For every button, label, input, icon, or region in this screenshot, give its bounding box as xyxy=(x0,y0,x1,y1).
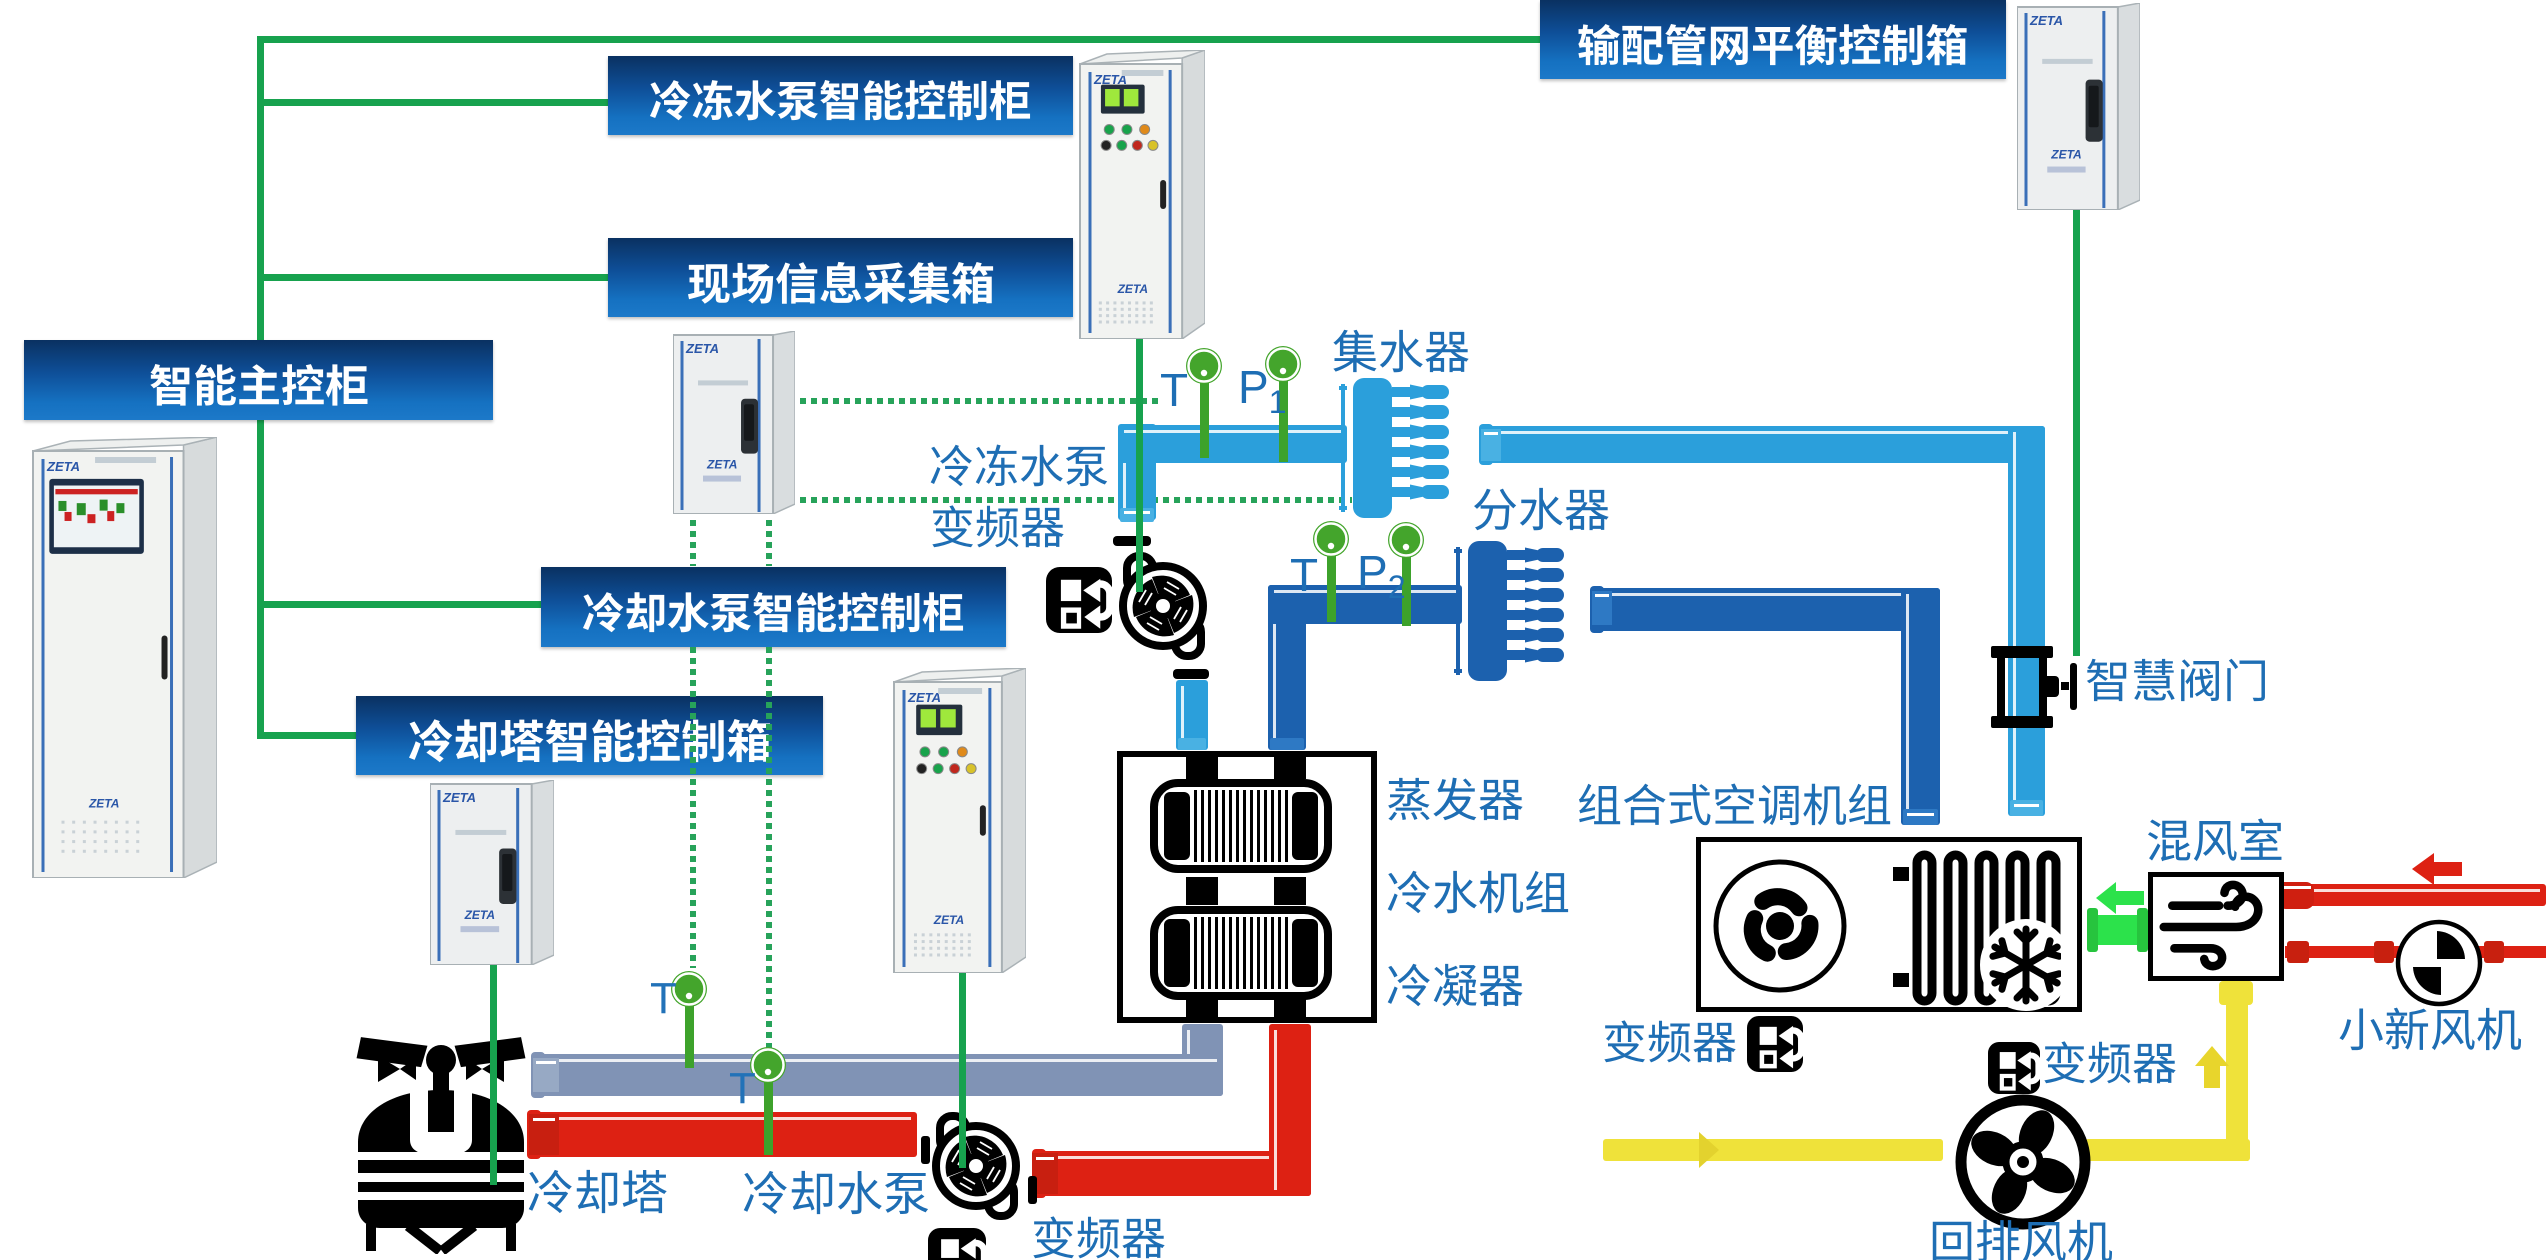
svg-text:ZETA: ZETA xyxy=(706,457,737,471)
svg-text:ZETA: ZETA xyxy=(2029,13,2063,28)
svg-text:ZETA: ZETA xyxy=(46,459,80,474)
svg-text:ZETA: ZETA xyxy=(442,790,476,805)
svg-text:ZETA: ZETA xyxy=(88,796,119,810)
svg-text:ZETA: ZETA xyxy=(2050,147,2081,161)
svg-text:ZETA: ZETA xyxy=(685,341,719,356)
svg-text:ZETA: ZETA xyxy=(907,690,941,705)
svg-text:ZETA: ZETA xyxy=(933,913,964,927)
svg-text:ZETA: ZETA xyxy=(1117,282,1148,296)
svg-text:ZETA: ZETA xyxy=(464,908,495,922)
